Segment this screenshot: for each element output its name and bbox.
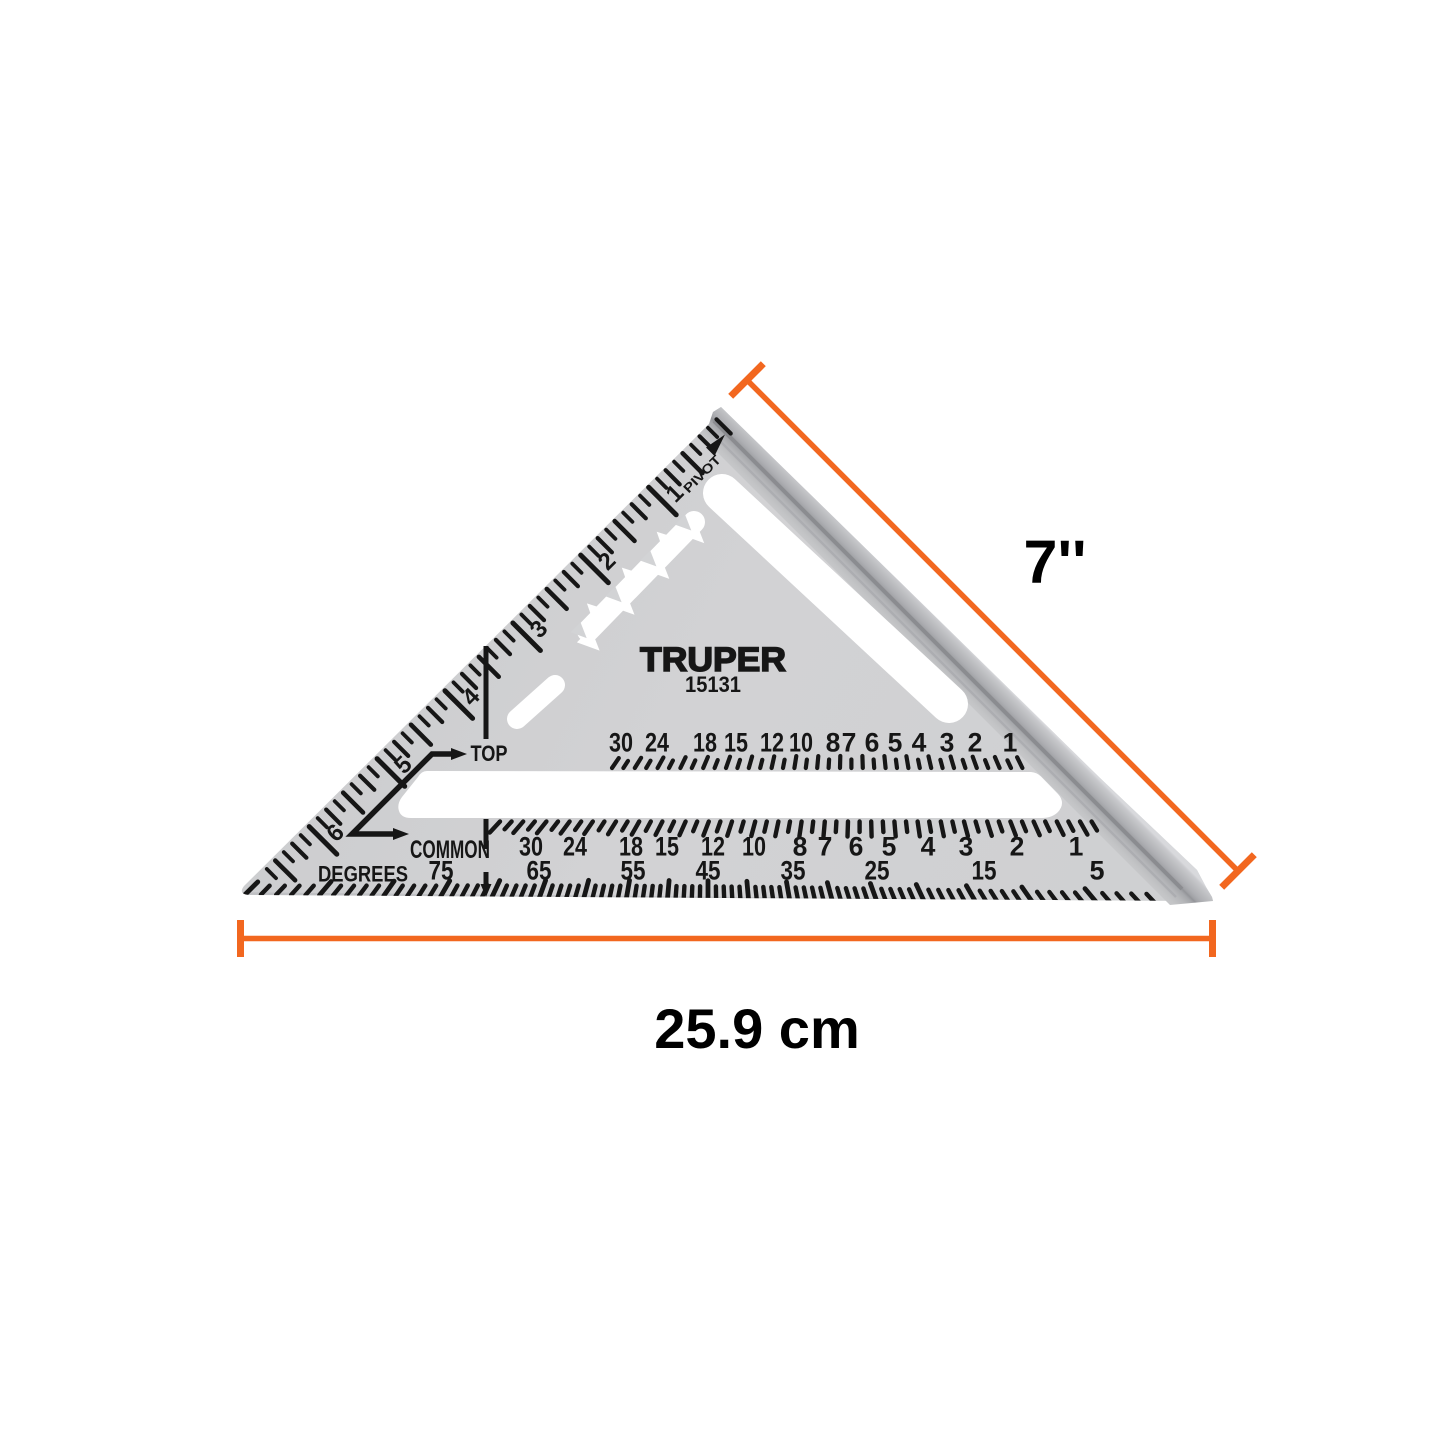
svg-text:8: 8 xyxy=(826,728,841,758)
svg-text:12: 12 xyxy=(760,728,784,758)
svg-text:15: 15 xyxy=(972,856,997,886)
svg-text:10: 10 xyxy=(789,728,813,758)
svg-text:75: 75 xyxy=(429,856,454,886)
svg-text:2: 2 xyxy=(968,728,983,758)
svg-text:4: 4 xyxy=(921,832,936,862)
svg-text:65: 65 xyxy=(527,856,552,886)
svg-text:7'': 7'' xyxy=(1024,528,1087,596)
svg-text:6: 6 xyxy=(865,728,880,758)
svg-text:15: 15 xyxy=(655,832,679,862)
svg-text:DEGREES: DEGREES xyxy=(318,861,408,886)
svg-text:24: 24 xyxy=(563,832,587,862)
svg-text:4: 4 xyxy=(912,728,927,758)
svg-text:25: 25 xyxy=(865,856,890,886)
svg-text:35: 35 xyxy=(781,856,806,886)
svg-text:55: 55 xyxy=(621,856,646,886)
svg-text:2: 2 xyxy=(1010,832,1025,862)
svg-text:45: 45 xyxy=(696,856,721,886)
svg-text:24: 24 xyxy=(645,728,669,758)
svg-text:3: 3 xyxy=(940,728,955,758)
svg-text:1: 1 xyxy=(1003,728,1018,758)
svg-text:25.9 cm: 25.9 cm xyxy=(654,997,860,1060)
svg-text:5: 5 xyxy=(1089,856,1104,886)
svg-text:15131: 15131 xyxy=(685,672,741,697)
svg-text:18: 18 xyxy=(693,728,717,758)
svg-text:1: 1 xyxy=(1069,832,1084,862)
svg-text:15: 15 xyxy=(724,728,748,758)
svg-text:10: 10 xyxy=(742,832,766,862)
svg-text:6: 6 xyxy=(849,832,864,862)
svg-text:7: 7 xyxy=(818,832,833,862)
svg-text:7: 7 xyxy=(842,728,857,758)
svg-text:30: 30 xyxy=(609,728,633,758)
svg-text:TOP: TOP xyxy=(471,741,508,766)
svg-text:5: 5 xyxy=(888,728,903,758)
